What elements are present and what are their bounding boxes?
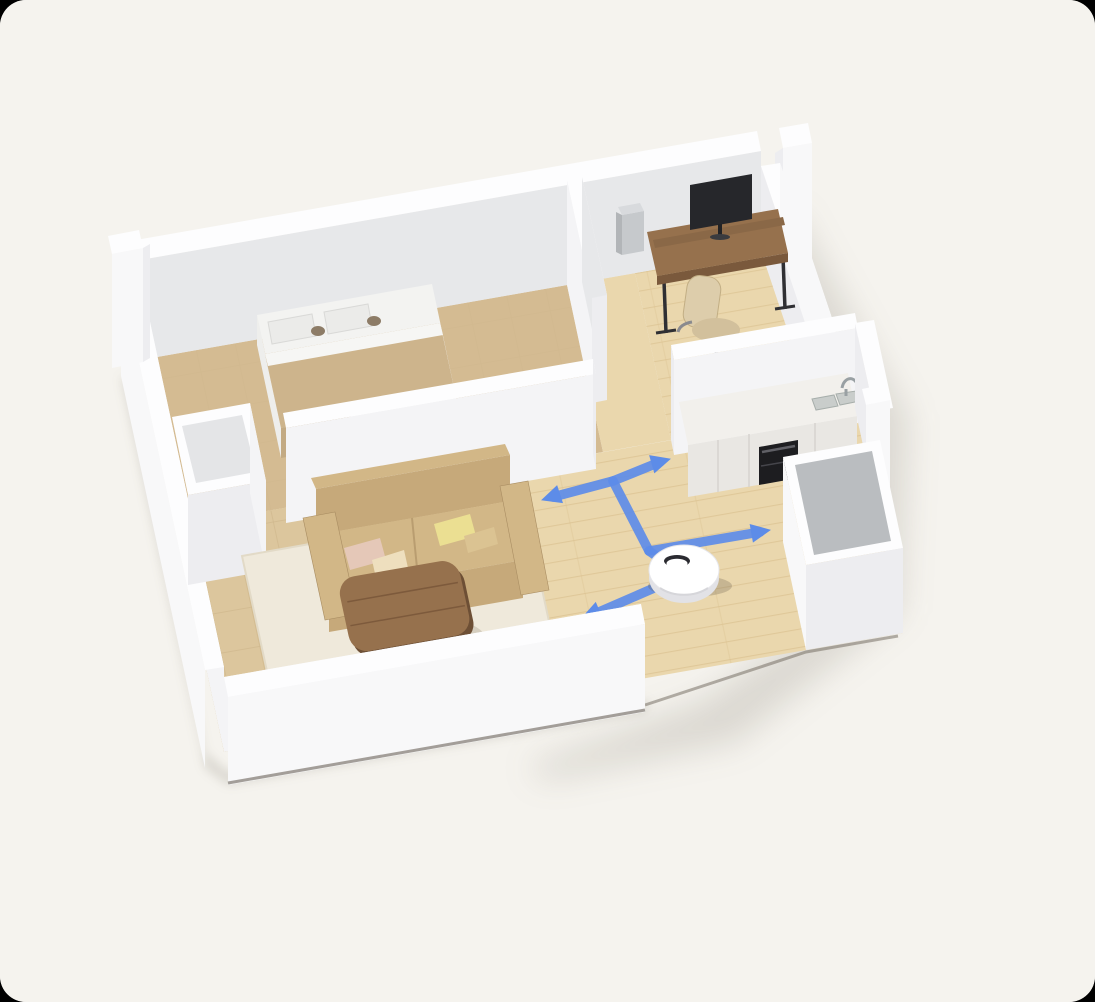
pc-tower-side	[616, 212, 622, 255]
robot-body-top	[649, 545, 719, 595]
bed-accent-left	[311, 326, 325, 336]
kitchen-island	[783, 440, 903, 650]
half-wall-end-face	[593, 359, 596, 469]
island-south-face	[806, 548, 903, 650]
robot-lidar-cover	[667, 559, 688, 569]
pillar-side-face	[143, 244, 150, 362]
apartment-render	[0, 0, 1095, 1002]
pillar-front-face	[112, 248, 143, 368]
pc-tower-front	[622, 211, 644, 255]
monitor-base	[710, 234, 730, 240]
floorplan-image	[0, 0, 1095, 1002]
desk-leg-left	[664, 281, 666, 333]
bed-accent-right	[367, 316, 381, 326]
left-corner-pillar	[108, 230, 150, 368]
kitchen-wall-end-face	[671, 345, 674, 455]
desk-leg-right	[783, 257, 785, 309]
